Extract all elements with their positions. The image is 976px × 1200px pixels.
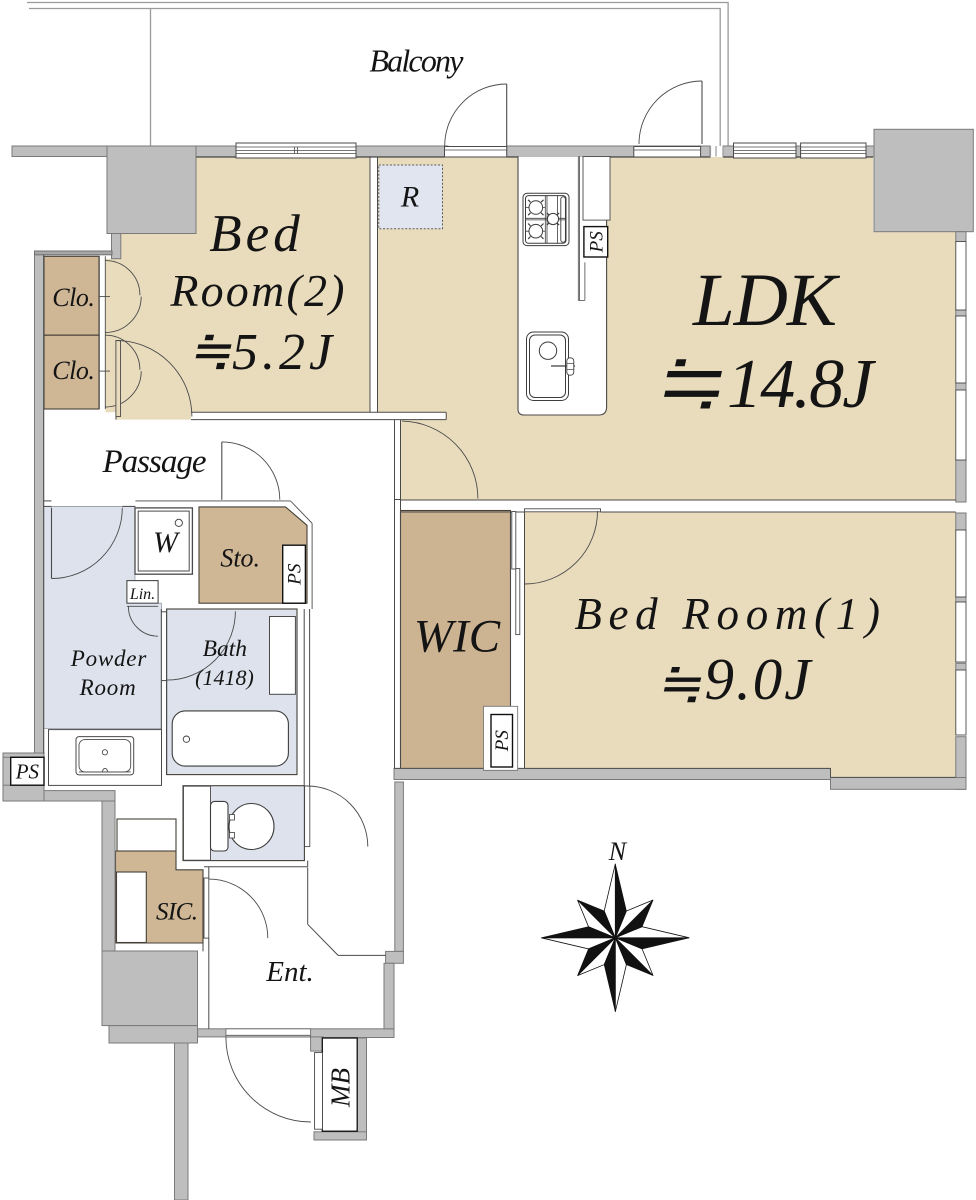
svg-text:LDK: LDK (692, 259, 841, 342)
svg-text:PS: PS (15, 760, 40, 784)
svg-text:N: N (608, 837, 628, 866)
svg-text:Passage: Passage (102, 444, 206, 480)
svg-text:Balcony: Balcony (369, 43, 464, 79)
svg-text:Room(2): Room(2) (169, 265, 346, 316)
svg-text:R: R (400, 180, 419, 213)
svg-text:Sto.: Sto. (220, 543, 260, 572)
svg-text:Lin.: Lin. (129, 586, 155, 603)
svg-text:5.2J: 5.2J (232, 324, 336, 381)
svg-text:PS: PS (285, 563, 306, 586)
svg-text:Bath: Bath (203, 636, 247, 662)
svg-text:Powder: Powder (70, 646, 148, 671)
svg-text:Bed Room(1): Bed Room(1) (574, 589, 886, 639)
svg-text:Clo.: Clo. (52, 356, 94, 385)
svg-text:WIC: WIC (414, 611, 501, 663)
svg-text:Bed: Bed (209, 205, 303, 263)
svg-text:14.8J: 14.8J (727, 346, 876, 423)
svg-text:Ent.: Ent. (265, 956, 314, 988)
svg-text:PS: PS (492, 730, 513, 753)
svg-text:Room: Room (79, 675, 137, 700)
svg-text:SIC.: SIC. (156, 899, 197, 926)
svg-text:(1418): (1418) (195, 665, 254, 690)
svg-text:W: W (153, 526, 181, 559)
svg-text:9.0J: 9.0J (705, 646, 814, 712)
svg-text:PS: PS (586, 231, 607, 254)
svg-text:MB: MB (325, 1068, 355, 1108)
svg-text:Clo.: Clo. (52, 283, 94, 312)
